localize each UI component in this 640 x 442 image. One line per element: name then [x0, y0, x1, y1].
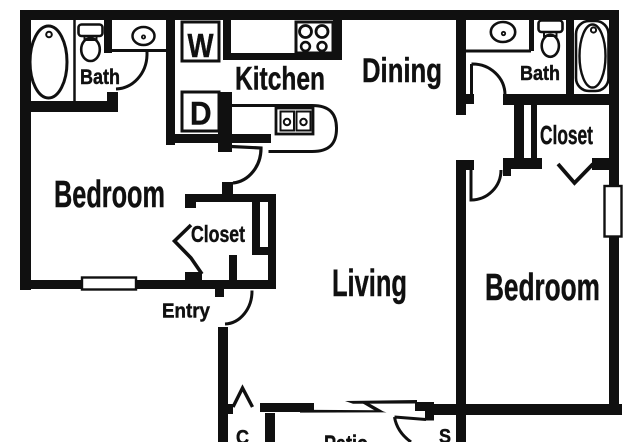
svg-text:Dining: Dining [362, 53, 442, 90]
svg-text:Living: Living [332, 262, 407, 304]
svg-text:Kitchen: Kitchen [235, 61, 325, 97]
svg-text:Entry: Entry [162, 300, 210, 323]
svg-text:S: S [439, 426, 451, 442]
svg-text:C: C [236, 427, 249, 442]
svg-text:Bath: Bath [520, 63, 560, 85]
svg-text:Patio: Patio [324, 431, 368, 442]
svg-text:Closet: Closet [540, 120, 593, 149]
svg-text:Bath: Bath [80, 66, 120, 90]
svg-text:D: D [190, 96, 211, 132]
svg-text:Closet: Closet [191, 222, 245, 248]
svg-text:Bedroom: Bedroom [485, 265, 600, 308]
svg-text:W: W [188, 28, 214, 65]
svg-text:Bedroom: Bedroom [54, 173, 165, 215]
